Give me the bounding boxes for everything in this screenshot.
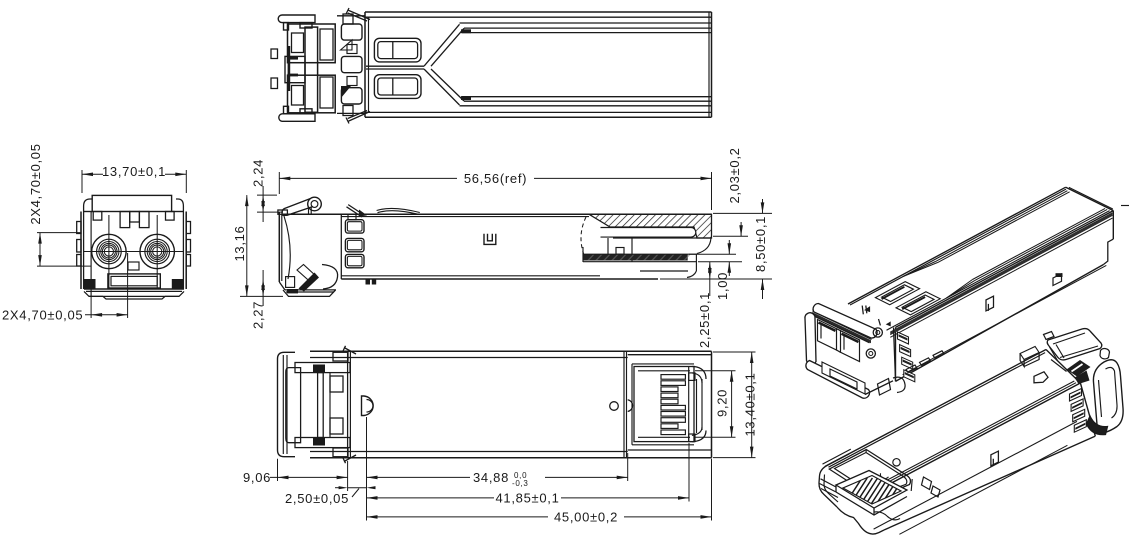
svg-text:2,27: 2,27 (251, 301, 266, 329)
svg-text:9,06: 9,06 (243, 470, 271, 485)
svg-text:13,70±0,1: 13,70±0,1 (102, 164, 166, 179)
svg-text:2,25±0,1: 2,25±0,1 (697, 292, 712, 348)
svg-text:2,03±0,2: 2,03±0,2 (727, 147, 742, 203)
svg-text:2,24: 2,24 (251, 159, 266, 187)
svg-text:13,40±0,1: 13,40±0,1 (743, 372, 758, 436)
svg-text:-0,3: -0,3 (512, 479, 529, 488)
svg-text:13,16: 13,16 (232, 225, 247, 261)
svg-text:9,20: 9,20 (715, 389, 730, 417)
svg-text:41,85±0,1: 41,85±0,1 (495, 491, 559, 506)
svg-text:34,88: 34,88 (473, 470, 509, 485)
svg-text:56,56(ref): 56,56(ref) (464, 171, 527, 186)
svg-text:8,50±0,1: 8,50±0,1 (753, 216, 768, 272)
svg-text:45,00±0,2: 45,00±0,2 (554, 510, 618, 525)
svg-text:2X4,70±0,05: 2X4,70±0,05 (2, 308, 83, 323)
svg-text:2,50±0,05: 2,50±0,05 (285, 491, 349, 506)
svg-text:2X4,70±0,05: 2X4,70±0,05 (28, 143, 43, 224)
svg-text:1,00: 1,00 (715, 272, 730, 300)
